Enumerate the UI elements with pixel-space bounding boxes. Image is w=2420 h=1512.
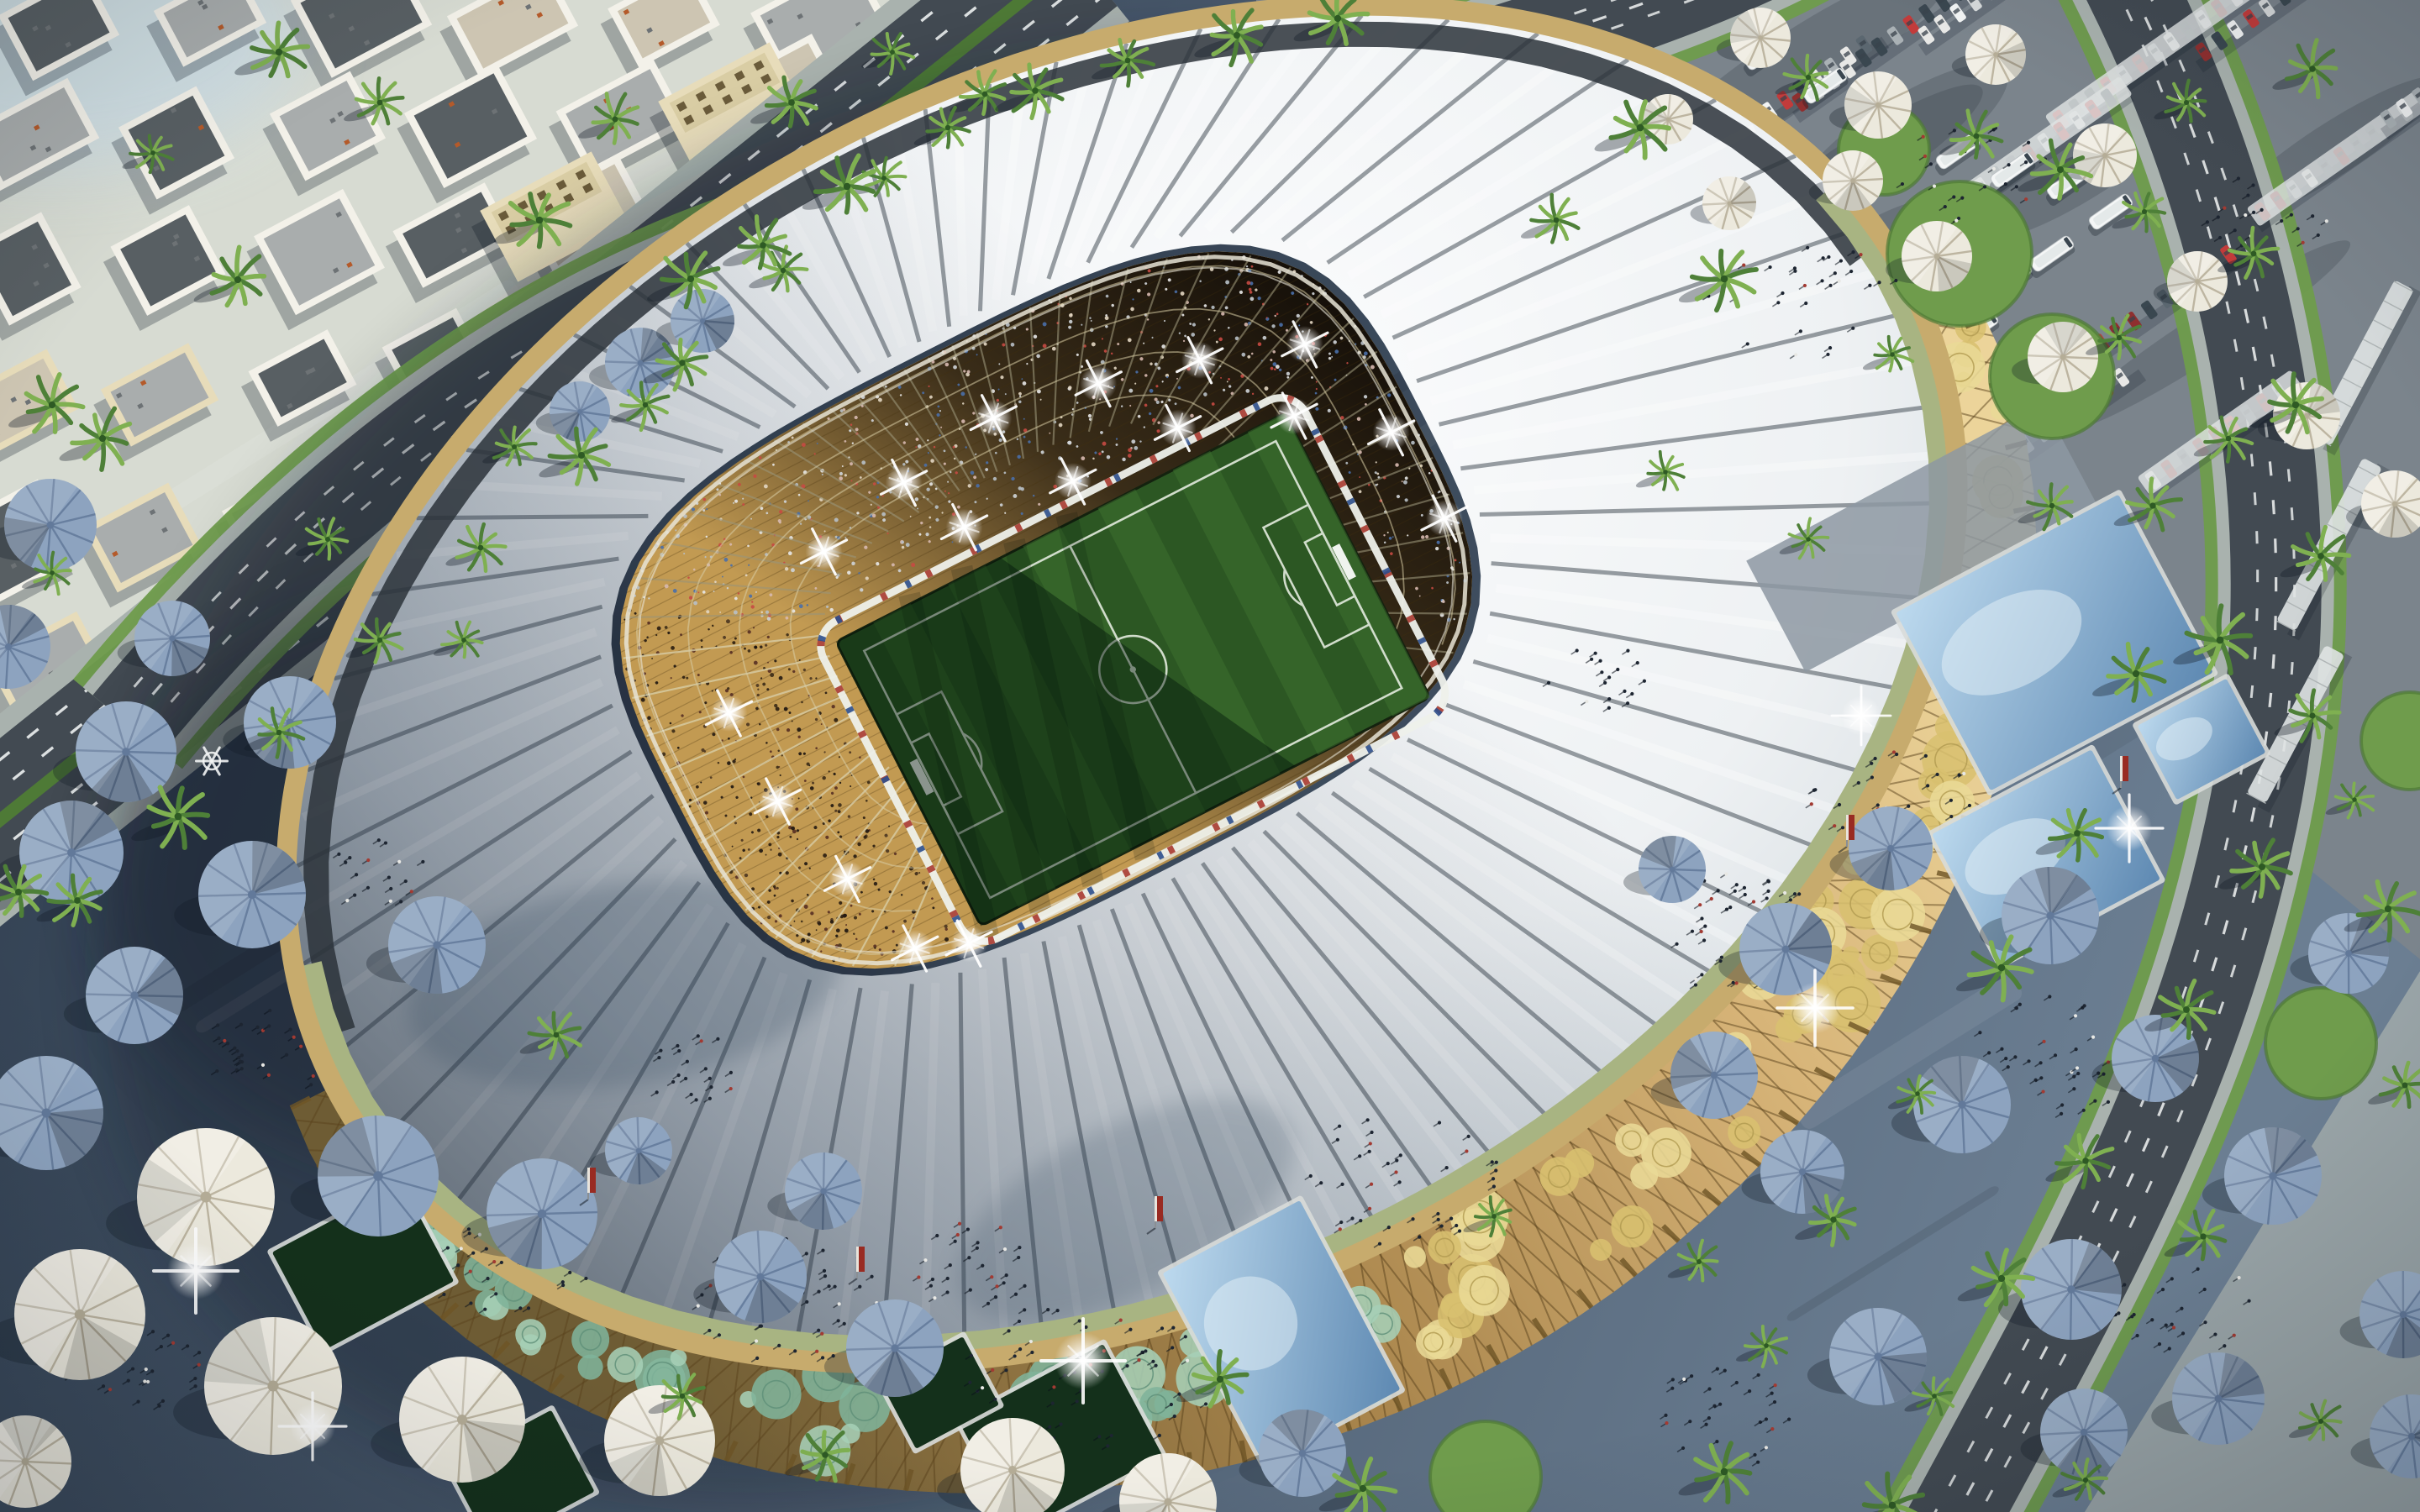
vignette (0, 0, 2420, 1512)
aerial-stadium-render (0, 0, 2420, 1512)
scene-container (0, 0, 2420, 1512)
